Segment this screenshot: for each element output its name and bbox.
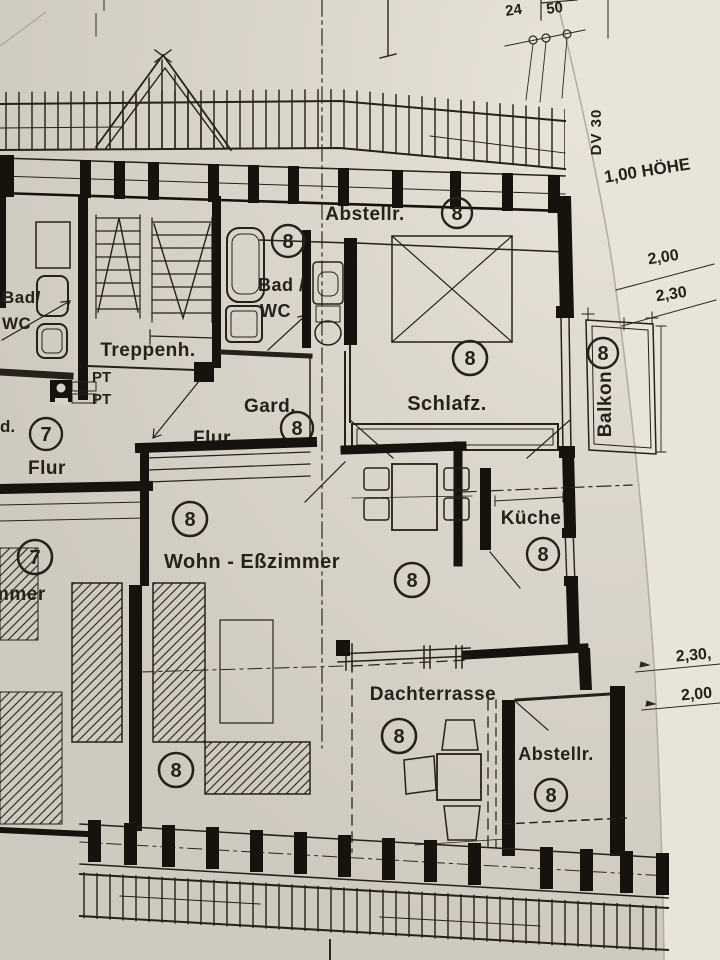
wall-living-west: [140, 452, 149, 586]
unit-number: 8: [597, 343, 608, 365]
floor-plan-photo: 24 50 DV 30 1,00 HÖHE: [0, 0, 720, 960]
fixture-dot: [57, 384, 66, 393]
room-label-abstellraum-top: Abstellr.: [325, 204, 404, 225]
room-label-schlafzimmer: Schlafz.: [407, 393, 487, 415]
fixture-slot: [55, 398, 68, 405]
dv-note: DV 30: [588, 109, 605, 156]
room-label-bad7-line1: Bad/: [2, 288, 41, 307]
dim-label: 2,00: [680, 685, 713, 705]
room-label-flur7: Flur: [28, 458, 66, 479]
unit-number: 8: [184, 509, 195, 531]
room-label-dachterrasse: Dachterrasse: [370, 684, 496, 705]
unit-number: 8: [451, 203, 462, 225]
room-label-zimmer7-fragment: mmer: [0, 584, 46, 605]
unit-number: 8: [393, 726, 404, 748]
wall-treppenhaus-east: [212, 196, 221, 368]
unit-number: 8: [291, 418, 302, 440]
room-label-bad8-line1: Bad /: [258, 275, 305, 295]
room-label-abstellraum-bottom: Abstellr.: [518, 744, 594, 764]
room-label-bad7-line2: WC: [2, 314, 31, 333]
dim-number: 24: [504, 1, 524, 20]
pt-label-upper: PT: [92, 369, 111, 386]
wall-treppenhaus-west: [78, 196, 88, 400]
unit-number: 7: [40, 424, 51, 446]
label-fragment-d: d.: [0, 417, 15, 436]
room-label-bad8-line2: WC: [260, 301, 291, 321]
room-label-kueche: Küche: [501, 508, 562, 529]
unit-number: 8: [537, 544, 548, 566]
room-label-balkon: Balkon: [595, 371, 616, 437]
unit-number: 8: [170, 760, 181, 782]
wall-block: [194, 362, 214, 382]
unit-number: 8: [464, 348, 475, 370]
unit-number: 8: [545, 785, 556, 807]
plan-svg: 24 50 DV 30 1,00 HÖHE: [0, 0, 720, 960]
room-label-treppenhaus: Treppenh.: [100, 340, 195, 361]
unit-number: 8: [282, 231, 293, 253]
wall-bottom-left: [0, 830, 86, 834]
unit-number: 7: [29, 547, 40, 569]
party-wall: [129, 585, 142, 831]
unit-number: 8: [406, 570, 417, 592]
dim-label: 2,30,: [675, 645, 712, 665]
room-label-wohn-esszimmer: Wohn - Eßzimmer: [164, 551, 340, 573]
